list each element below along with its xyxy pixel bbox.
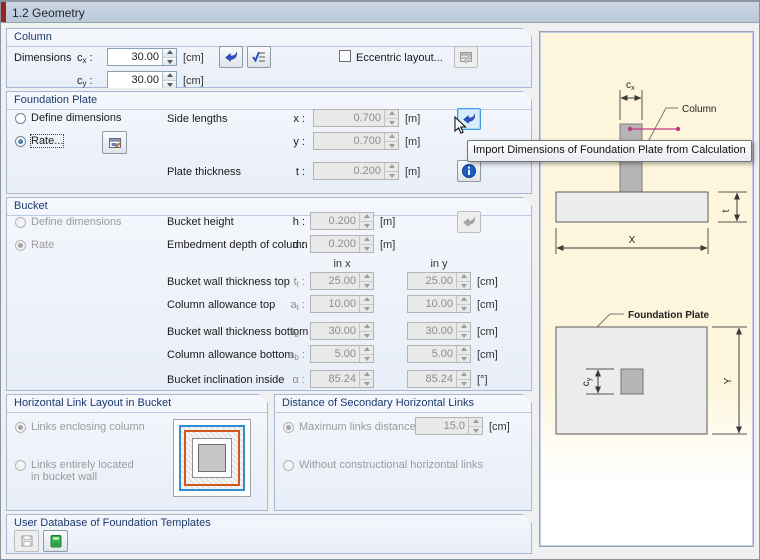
at-x-spinner[interactable] [359,296,373,312]
t-dim-label: t [721,209,732,212]
links-enclosing-radio[interactable]: Links enclosing column [15,421,145,433]
dimensions-label: Dimensions [14,52,71,64]
at-symbol: at : [277,299,305,312]
radio-circle-icon[interactable] [15,460,26,471]
plate-diagram-label: Foundation Plate [628,310,710,321]
links-in-wall-radio[interactable]: Links entirely locatedin bucket wall [15,459,134,483]
plate-thickness-info-button[interactable] [457,160,481,182]
bucket-row-label: Column allowance top [167,299,275,311]
tb-x-field[interactable]: 30.00 [310,322,374,340]
tb-x-spinner[interactable] [359,323,373,339]
at-x-field[interactable]: 10.00 [310,295,374,313]
rate-radio-label: Rate... [31,135,63,147]
user-db-section: User Database of Foundation Templates [6,514,532,554]
plate-y-spinner[interactable] [384,133,398,149]
x-dim-label: X [629,235,636,246]
tb-y-spinner[interactable] [456,323,470,339]
bucket-d-unit: [m] [380,239,395,251]
tt-symbol: tt : [277,276,305,289]
spin-up-icon[interactable] [360,296,373,305]
link-layout-title: Horizontal Link Layout in Bucket [14,397,171,409]
plate-t-value[interactable]: 0.200 [314,163,384,179]
tt-unit: [cm] [477,276,498,288]
tt-y-value[interactable]: 25.00 [408,273,456,289]
bucket-row-label: Bucket wall thickness top [167,276,290,288]
ab-y-spinner[interactable] [456,346,470,362]
inner-link-square [184,430,240,486]
plate-x-unit: [m] [405,113,420,125]
spin-down-icon[interactable] [385,119,398,127]
plate-x-value[interactable]: 0.700 [314,110,384,126]
import-tooltip: Import Dimensions of Foundation Plate fr… [467,140,752,162]
in-x-column-header: in x [310,258,374,270]
at-y-field[interactable]: 10.00 [407,295,471,313]
spin-up-icon[interactable] [457,323,470,332]
links-in-wall-label: Links entirely locatedin bucket wall [31,459,134,483]
info-icon [461,163,477,179]
import-icon [223,49,239,65]
spin-up-icon[interactable] [469,418,482,427]
link-layout-diagram [173,419,251,497]
window-edit-icon [107,135,123,151]
foundation-plate-section: Foundation Plate Define dimensions Rate.… [6,91,532,194]
spin-down-icon[interactable] [457,282,470,290]
import-column-dimensions-button[interactable] [219,46,243,68]
radio-circle-icon[interactable] [283,460,294,471]
database-icon [48,533,64,549]
cx-dim-label: cx [626,80,635,92]
tb-symbol: tb : [277,326,305,339]
alpha-x-value[interactable]: 85.24 [311,371,359,387]
column-plan [621,369,643,394]
bucket-h-spinner[interactable] [359,213,373,229]
alpha-symbol: α : [277,374,305,387]
spin-up-icon[interactable] [163,72,176,81]
radio-circle-icon[interactable] [15,422,26,433]
spin-down-icon[interactable] [360,355,373,363]
geometry-diagram-panel: cx Column t X Foundation Plate [539,31,754,547]
max-links-distance-field[interactable]: 15.0 [415,417,483,435]
plate-elevation [556,192,708,222]
axis-node [628,127,632,131]
column-section-title: Column [14,31,52,43]
bucket-opening [192,438,232,478]
column-diagram-label: Column [682,104,716,115]
table-edit-icon [458,49,474,65]
cx-field[interactable]: 30.00 [107,48,177,66]
eccentric-layout-label: Eccentric layout... [356,52,443,64]
radio-circle-icon[interactable] [15,217,26,228]
ab-symbol: ab : [277,349,305,362]
rate-radio[interactable]: Rate... [15,135,63,147]
ab-unit: [cm] [477,349,498,361]
rate-settings-button[interactable] [102,131,127,154]
save-template-button[interactable] [14,530,39,552]
without-links-label: Without constructional horizontal links [299,459,483,471]
user-db-title: User Database of Foundation Templates [14,517,211,529]
bucket-h-unit: [m] [380,216,395,228]
cy-symbol: cy : [77,75,93,88]
divider [7,109,531,110]
spin-up-icon[interactable] [385,133,398,142]
spin-up-icon[interactable] [360,213,373,222]
cx-symbol: cx : [77,52,93,65]
header-red-accent [1,2,6,22]
spin-up-icon[interactable] [457,273,470,282]
save-icon [19,533,35,549]
spin-down-icon[interactable] [360,282,373,290]
bucket-row-label: Column allowance bottom [167,349,294,361]
tb-unit: [cm] [477,326,498,338]
in-y-column-header: in y [407,258,471,270]
bucket-rate-radio[interactable]: Rate [15,239,54,251]
spin-up-icon[interactable] [457,346,470,355]
spin-up-icon[interactable] [385,110,398,119]
bucket-d-value[interactable]: 0.200 [311,236,359,252]
cx-spinner[interactable] [162,49,176,65]
radio-circle-icon[interactable] [15,136,26,147]
cy-field[interactable]: 30.00 [107,71,177,89]
at-y-value[interactable]: 10.00 [408,296,456,312]
bucket-height-label: Bucket height [167,216,234,228]
max-links-unit: [cm] [489,421,510,433]
tt-y-spinner[interactable] [456,273,470,289]
geometry-diagram: cx Column t X Foundation Plate [540,32,753,546]
spin-down-icon[interactable] [457,305,470,313]
plate-y-unit: [m] [405,136,420,148]
axis-node [676,127,680,131]
spin-up-icon[interactable] [457,371,470,380]
define-dimensions-radio-label: Define dimensions [31,112,122,124]
ab-y-field[interactable]: 5.00 [407,345,471,363]
ab-x-field[interactable]: 5.00 [310,345,374,363]
plate-thickness-label: Plate thickness [167,166,241,178]
radio-circle-icon[interactable] [283,422,294,433]
import-bucket-height-button[interactable] [457,211,481,233]
column-section: Column Dimensions cx : 30.00 [cm] cy : 3… [6,28,532,88]
open-template-database-button[interactable] [43,530,68,552]
tt-y-field[interactable]: 25.00 [407,272,471,290]
plate-x-spinner[interactable] [384,110,398,126]
radio-circle-icon[interactable] [15,113,26,124]
h-symbol: h : [285,216,305,228]
mouse-cursor-icon [454,116,467,135]
bucket-define-dimensions-radio[interactable]: Define dimensions [15,216,122,228]
at-y-spinner[interactable] [456,296,470,312]
spin-down-icon[interactable] [163,81,176,89]
plate-t-field[interactable]: 0.200 [313,162,399,180]
foundation-plate-title: Foundation Plate [14,94,97,106]
cy-value[interactable]: 30.00 [108,72,162,88]
bucket-d-spinner[interactable] [359,236,373,252]
plate-t-unit: [m] [405,166,420,178]
ab-x-spinner[interactable] [359,346,373,362]
define-dimensions-radio[interactable]: Define dimensions [15,112,122,124]
bucket-define-dimensions-label: Define dimensions [31,216,122,228]
plate-y-value[interactable]: 0.700 [314,133,384,149]
cy-spinner[interactable] [162,72,176,88]
t-symbol: t : [287,166,305,178]
spin-down-icon[interactable] [457,380,470,388]
outer-link-square [179,425,245,491]
alpha-unit: [°] [477,374,488,386]
ab-y-value[interactable]: 5.00 [408,346,456,362]
dialog-header: 1.2 Geometry [1,1,759,23]
spin-down-icon[interactable] [163,58,176,66]
spin-up-icon[interactable] [360,323,373,332]
alpha-y-spinner[interactable] [456,371,470,387]
links-enclosing-label: Links enclosing column [31,421,145,433]
spin-up-icon[interactable] [360,236,373,245]
bucket-h-field[interactable]: 0.200 [310,212,374,230]
divider [275,412,531,413]
bucket-h-value[interactable]: 0.200 [311,213,359,229]
spin-down-icon[interactable] [469,427,482,435]
max-links-distance-value[interactable]: 15.0 [416,418,468,434]
plate-t-spinner[interactable] [384,163,398,179]
ab-x-value[interactable]: 5.00 [311,346,359,362]
column-cross-section [198,444,226,472]
bucket-section: Bucket Define dimensions Rate Bucket hei… [6,197,532,391]
spin-down-icon[interactable] [360,222,373,230]
d-symbol: d : [285,239,305,251]
max-links-distance-label: Maximum links distance [299,421,416,433]
spin-down-icon[interactable] [360,380,373,388]
spin-up-icon[interactable] [385,163,398,172]
spin-up-icon[interactable] [360,371,373,380]
radio-circle-icon[interactable] [15,240,26,251]
tt-x-field[interactable]: 25.00 [310,272,374,290]
spin-up-icon[interactable] [163,49,176,58]
plate-y-field[interactable]: 0.700 [313,132,399,150]
spin-up-icon[interactable] [457,296,470,305]
divider [7,412,267,413]
alpha-x-field[interactable]: 85.24 [310,370,374,388]
spin-up-icon[interactable] [360,273,373,282]
at-x-value[interactable]: 10.00 [311,296,359,312]
bucket-d-field[interactable]: 0.200 [310,235,374,253]
y-symbol: y : [287,136,305,148]
geometry-dialog: 1.2 Geometry Column Dimensions cx : 30.0… [0,0,760,560]
tb-y-field[interactable]: 30.00 [407,322,471,340]
cx-value[interactable]: 30.00 [108,49,162,65]
bucket-title: Bucket [14,200,48,212]
max-links-distance-radio[interactable]: Maximum links distance [283,421,416,433]
y-dim-label: Y [723,377,734,384]
tt-x-value[interactable]: 25.00 [311,273,359,289]
max-links-spinner[interactable] [468,418,482,434]
secondary-links-section: Distance of Secondary Horizontal Links M… [274,394,532,511]
eccentric-layout-edit-button[interactable] [454,46,478,68]
select-column-button[interactable] [247,46,271,68]
without-links-radio[interactable]: Without constructional horizontal links [283,459,483,471]
spin-down-icon[interactable] [385,142,398,150]
side-lengths-label: Side lengths [167,113,228,125]
secondary-links-title: Distance of Secondary Horizontal Links [282,397,474,409]
spin-down-icon[interactable] [360,245,373,253]
tb-y-value[interactable]: 30.00 [408,323,456,339]
spin-down-icon[interactable] [457,355,470,363]
import-icon [461,214,477,230]
bucket-row-label: Bucket inclination inside [167,374,284,386]
cx-unit: [cm] [183,52,204,64]
tb-x-value[interactable]: 30.00 [311,323,359,339]
spin-up-icon[interactable] [360,346,373,355]
page-title: 1.2 Geometry [12,6,85,20]
bucket-rate-label: Rate [31,239,54,251]
spin-down-icon[interactable] [360,305,373,313]
at-unit: [cm] [477,299,498,311]
tt-x-spinner[interactable] [359,273,373,289]
spin-down-icon[interactable] [385,172,398,180]
alpha-x-spinner[interactable] [359,371,373,387]
spin-down-icon[interactable] [360,332,373,340]
spin-down-icon[interactable] [457,332,470,340]
check-list-icon [251,49,267,65]
cy-unit: [cm] [183,75,204,87]
alpha-y-value[interactable]: 85.24 [408,371,456,387]
plate-x-field[interactable]: 0.700 [313,109,399,127]
link-layout-section: Horizontal Link Layout in Bucket Links e… [6,394,268,511]
x-symbol: x : [287,113,305,125]
eccentric-layout-checkbox[interactable] [339,50,351,62]
alpha-y-field[interactable]: 85.24 [407,370,471,388]
